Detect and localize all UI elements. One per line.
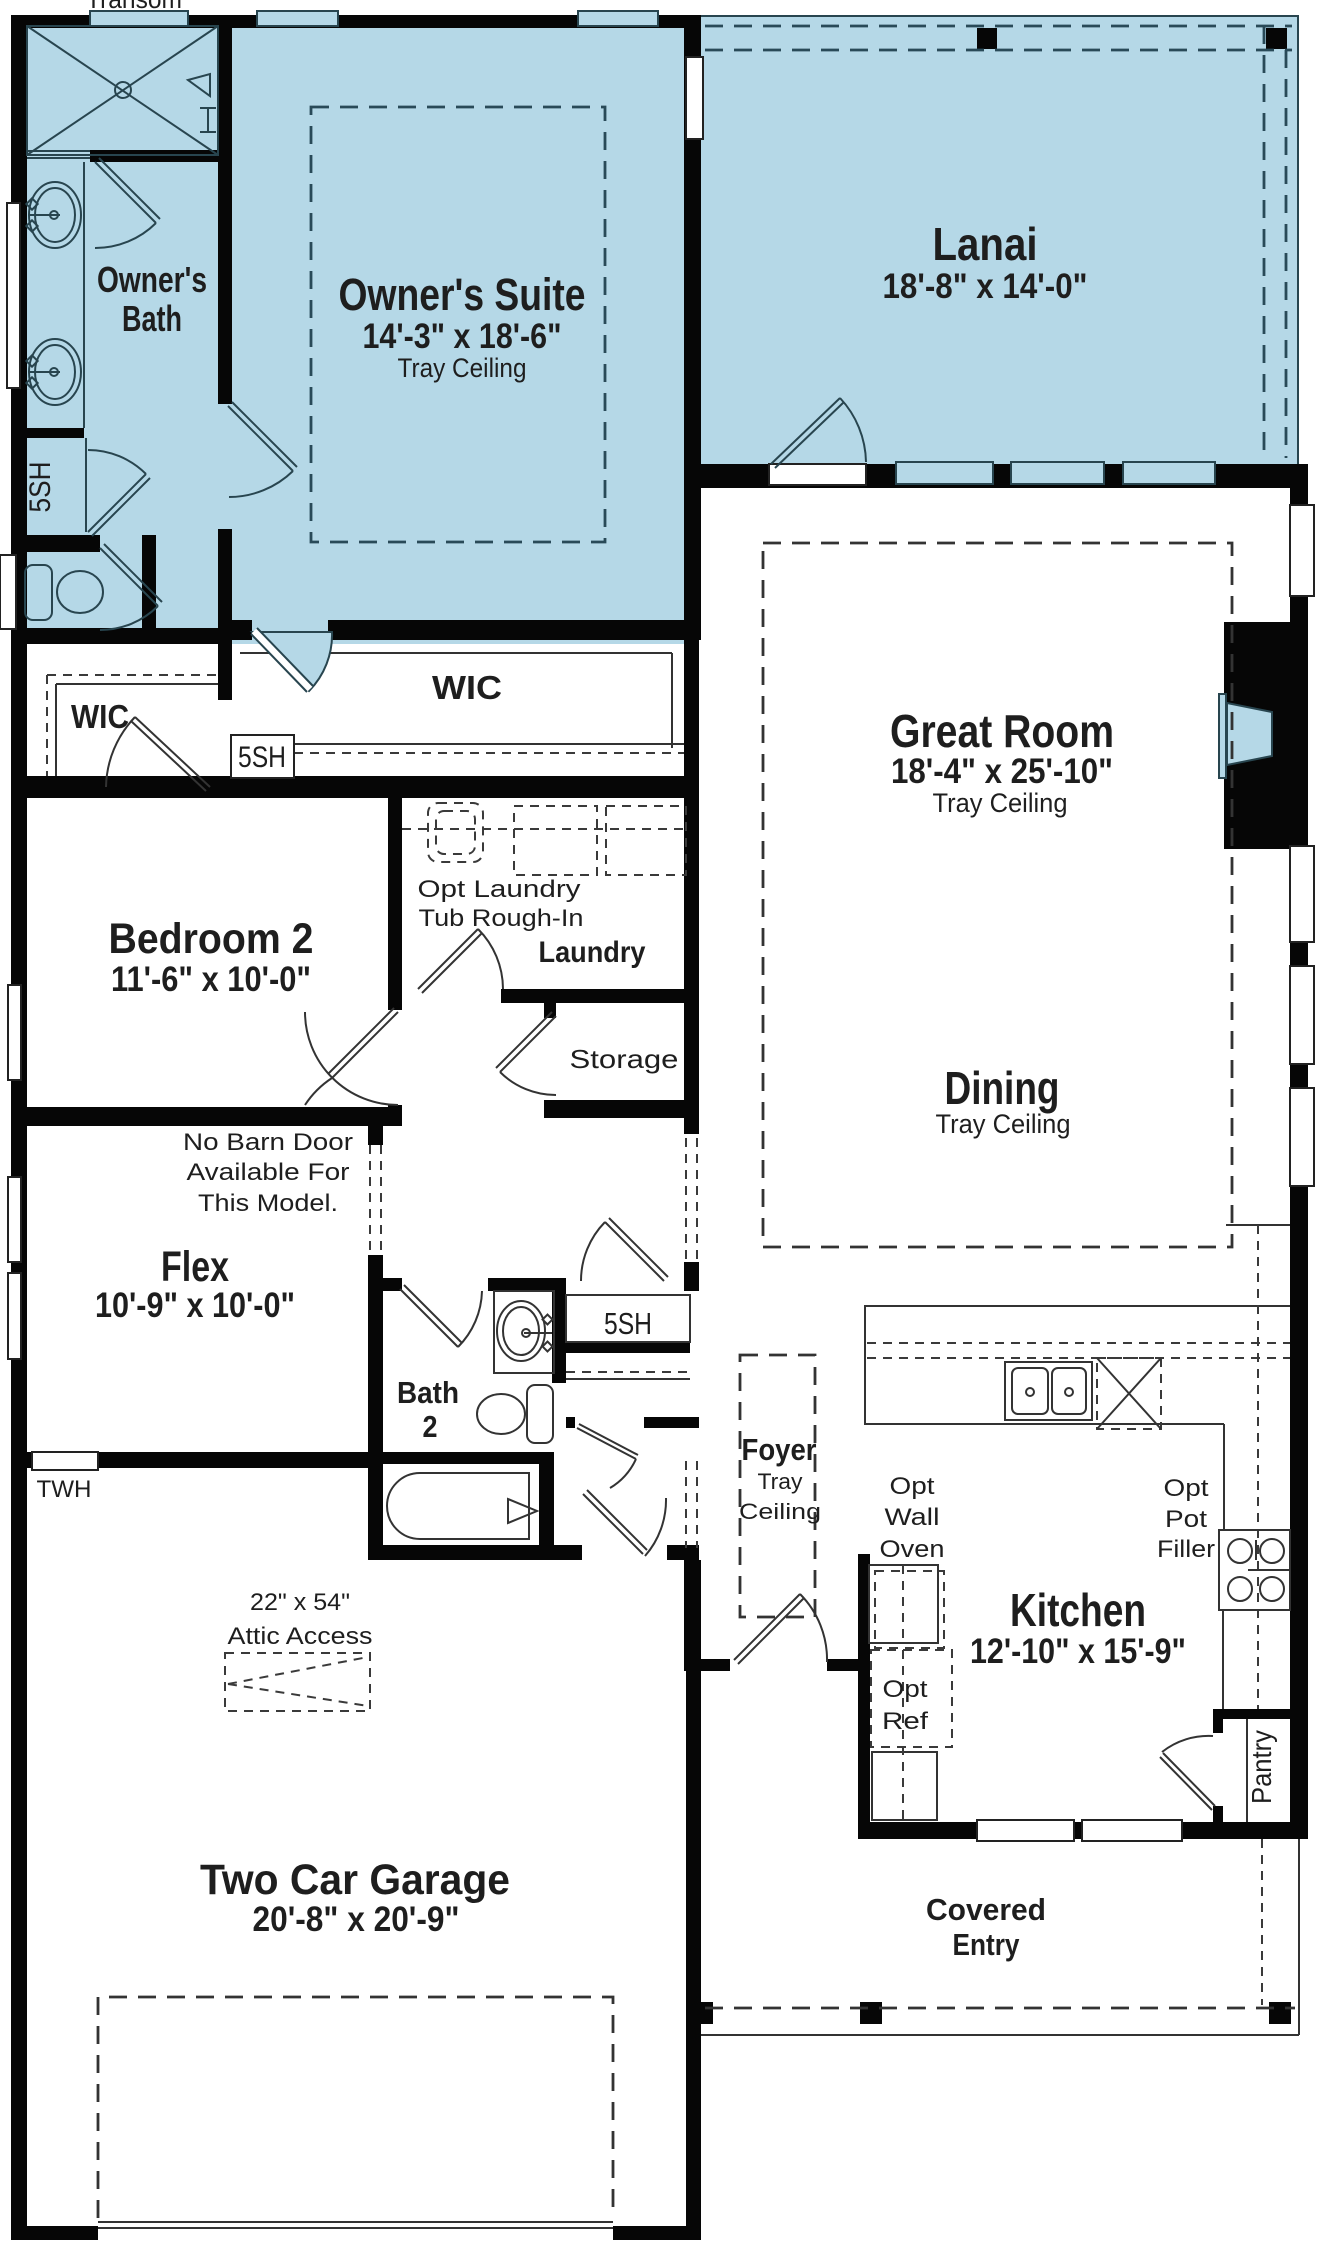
svg-text:Pot: Pot (1165, 1506, 1207, 1533)
svg-text:Filler: Filler (1157, 1536, 1215, 1563)
svg-text:TWH: TWH (37, 1476, 92, 1503)
svg-text:Owner's: Owner's (97, 259, 207, 300)
svg-text:Opt Laundry: Opt Laundry (418, 876, 581, 903)
svg-text:Entry: Entry (953, 1927, 1021, 1962)
svg-text:Covered: Covered (926, 1892, 1046, 1927)
svg-text:Opt: Opt (1164, 1475, 1209, 1502)
svg-text:Storage: Storage (570, 1044, 679, 1074)
svg-text:Dining: Dining (945, 1062, 1060, 1114)
svg-text:Flex: Flex (161, 1243, 229, 1291)
svg-text:5SH: 5SH (604, 1306, 652, 1341)
svg-text:Bath: Bath (122, 298, 182, 339)
svg-text:This Model.: This Model. (198, 1190, 338, 1217)
svg-text:Laundry: Laundry (539, 936, 646, 969)
svg-text:Pantry: Pantry (1246, 1730, 1277, 1804)
svg-text:18'-8" x 14'-0": 18'-8" x 14'-0" (883, 267, 1088, 306)
svg-text:Tray Ceiling: Tray Ceiling (933, 788, 1068, 818)
svg-text:2: 2 (423, 1409, 438, 1444)
svg-text:Tray Ceiling: Tray Ceiling (398, 353, 527, 383)
svg-text:20'-8" x 20'-9": 20'-8" x 20'-9" (253, 1900, 460, 1939)
svg-text:5SH: 5SH (238, 741, 286, 774)
svg-text:Two Car Garage: Two Car Garage (200, 1856, 510, 1904)
svg-text:No Barn Door: No Barn Door (183, 1129, 353, 1156)
svg-text:Wall: Wall (885, 1504, 940, 1531)
svg-text:Tray Ceiling: Tray Ceiling (936, 1109, 1071, 1139)
svg-text:Bedroom 2: Bedroom 2 (109, 915, 314, 963)
svg-text:18'-4" x 25'-10": 18'-4" x 25'-10" (891, 752, 1113, 791)
svg-text:Owner's Suite: Owner's Suite (339, 269, 586, 320)
svg-text:Ref: Ref (882, 1708, 928, 1735)
svg-text:22" x 54": 22" x 54" (250, 1589, 350, 1616)
svg-text:Great Room: Great Room (890, 705, 1114, 757)
svg-text:5SH: 5SH (24, 462, 57, 513)
svg-text:Transom: Transom (86, 0, 182, 14)
svg-text:10'-9" x 10'-0": 10'-9" x 10'-0" (95, 1286, 295, 1325)
svg-text:Lanai: Lanai (933, 218, 1038, 270)
svg-text:WIC: WIC (71, 698, 129, 735)
svg-text:12'-10" x 15'-9": 12'-10" x 15'-9" (970, 1632, 1186, 1671)
svg-text:Opt: Opt (883, 1676, 928, 1703)
svg-text:Tray: Tray (758, 1469, 803, 1494)
svg-text:Tub Rough-In: Tub Rough-In (419, 905, 584, 932)
svg-text:11'-6" x 10'-0": 11'-6" x 10'-0" (111, 960, 311, 999)
svg-text:Kitchen: Kitchen (1010, 1584, 1146, 1636)
svg-text:WIC: WIC (432, 669, 502, 706)
svg-text:Available For: Available For (187, 1159, 350, 1186)
svg-text:Attic Access: Attic Access (228, 1623, 373, 1650)
svg-text:Opt: Opt (890, 1473, 935, 1500)
svg-text:14'-3" x 18'-6": 14'-3" x 18'-6" (363, 317, 562, 356)
svg-text:Bath: Bath (397, 1375, 459, 1410)
svg-text:Foyer: Foyer (742, 1432, 817, 1467)
svg-text:Oven: Oven (880, 1536, 945, 1563)
svg-text:Ceiling: Ceiling (739, 1499, 821, 1524)
